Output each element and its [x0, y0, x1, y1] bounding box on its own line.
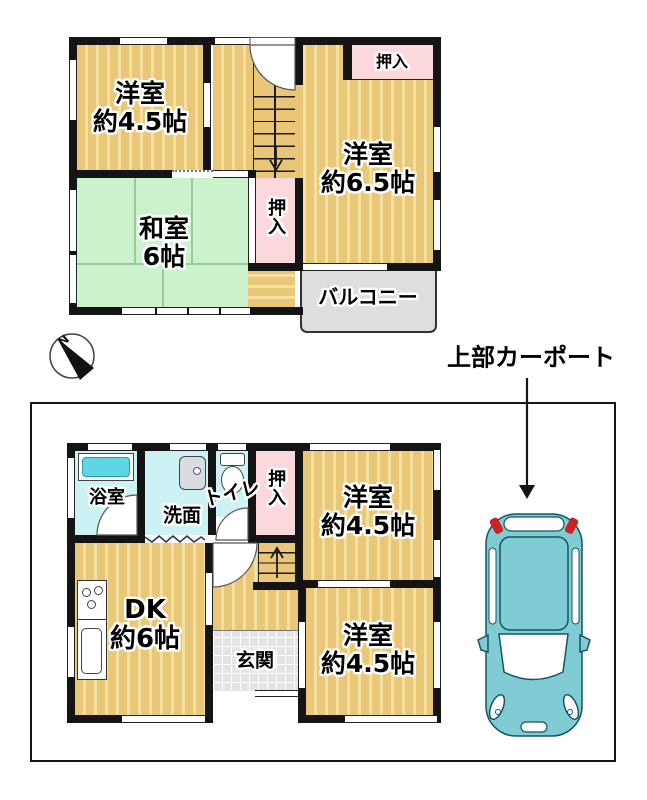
window [215, 37, 253, 45]
floor-plan: N 洋室 約4.5帖 和室 6帖 洋室 約6.5帖 [0, 0, 647, 800]
wall [303, 580, 318, 588]
window [122, 715, 205, 723]
room-name: 洋室 [321, 622, 415, 650]
f2-washitsu-sliding-door [213, 170, 248, 178]
stove-burner [82, 588, 91, 597]
stove-burner [87, 600, 96, 609]
entrance-door [255, 690, 298, 697]
wall [387, 263, 441, 271]
kitchen-counter [77, 580, 107, 680]
room-size: 約6帖 [110, 625, 180, 654]
room-size: 約4.5帖 [93, 108, 187, 136]
wall [203, 127, 211, 170]
wall [248, 263, 303, 271]
tatami-line [134, 178, 136, 263]
window [120, 37, 167, 45]
compass-north-label: N [55, 332, 72, 349]
wall [253, 582, 303, 590]
room-name: 洋室 [93, 80, 187, 108]
stair-treads [259, 543, 295, 582]
wall [298, 588, 306, 622]
window [67, 627, 75, 677]
room-name: DK [110, 596, 180, 625]
f1-genkan-label: 玄関 [236, 650, 274, 671]
f2-balcony-label: バルコニー [318, 286, 418, 308]
f1-wash-label: 洗面 [163, 505, 201, 526]
toilet-tank [220, 453, 245, 466]
window [310, 443, 390, 451]
f1-dk-label: DK 約6帖 [110, 596, 180, 654]
f1-stairs [258, 543, 295, 582]
carport-label: 上部カーポート [447, 345, 615, 372]
window-divider [187, 307, 189, 315]
wall [137, 451, 145, 535]
window-divider [69, 251, 77, 255]
wall [248, 535, 303, 543]
wall [343, 37, 352, 80]
stair-center-line [274, 85, 276, 178]
window [88, 443, 132, 451]
f2-hallway [213, 45, 253, 178]
wall [295, 37, 303, 85]
window [170, 443, 206, 451]
f2-room-nw-label: 洋室 約4.5帖 [93, 80, 187, 136]
f2-room-nw-door [203, 83, 211, 127]
f1-rooms-sliding-door [318, 580, 390, 588]
f2-closet-sliding-door [248, 178, 256, 263]
window [433, 450, 441, 490]
f2-washitsu-label: 和室 6帖 [139, 215, 189, 271]
f2-balcony-door [303, 263, 387, 271]
wall [248, 170, 256, 178]
kitchen-sink [81, 628, 102, 674]
wall [205, 625, 213, 715]
wall [295, 178, 303, 271]
room-name: 和室 [139, 215, 189, 243]
window [433, 200, 441, 250]
window [69, 60, 77, 120]
tatami-line [191, 178, 193, 263]
room-name: 洋室 [321, 141, 415, 169]
wash-basin [179, 456, 206, 490]
window [69, 190, 77, 303]
f1-dk-door [205, 573, 213, 625]
room-size: 6帖 [139, 243, 189, 271]
window [433, 540, 441, 577]
f1-room-se-door [298, 622, 306, 688]
window-divider [219, 307, 221, 315]
window [345, 715, 437, 723]
room-size: 約4.5帖 [321, 650, 415, 678]
wall [295, 443, 303, 543]
room-size: 約4.5帖 [321, 512, 415, 540]
window [433, 127, 441, 172]
wall [203, 45, 211, 83]
wall [390, 580, 441, 588]
f1-bath-label: 浴室 [89, 488, 125, 508]
wall [69, 170, 172, 178]
basin-faucet [193, 467, 201, 475]
f1-room-se-label: 洋室 約4.5帖 [321, 622, 415, 678]
window [67, 458, 75, 518]
f1-closet-label: 押入 [265, 469, 285, 507]
room-name: 洋室 [321, 484, 415, 512]
wall [67, 535, 145, 543]
bathtub [82, 457, 130, 477]
room-size: 約6.5帖 [321, 169, 415, 197]
f2-open-doorway [172, 170, 213, 178]
window [218, 443, 246, 451]
counter-divider [78, 619, 106, 620]
f2-closet-side-label: 押入 [265, 198, 285, 236]
window [122, 307, 250, 315]
f2-room-e-label: 洋室 約6.5帖 [321, 141, 415, 197]
window-divider [155, 307, 157, 315]
stove-burner [94, 586, 103, 595]
f1-room-ne-label: 洋室 約4.5帖 [321, 484, 415, 540]
f2-stairs [253, 45, 295, 178]
compass-icon: N [50, 332, 94, 380]
f2-closet-top-label: 押入 [376, 53, 408, 71]
wall [205, 543, 213, 573]
wall [298, 688, 306, 715]
window [433, 622, 441, 688]
